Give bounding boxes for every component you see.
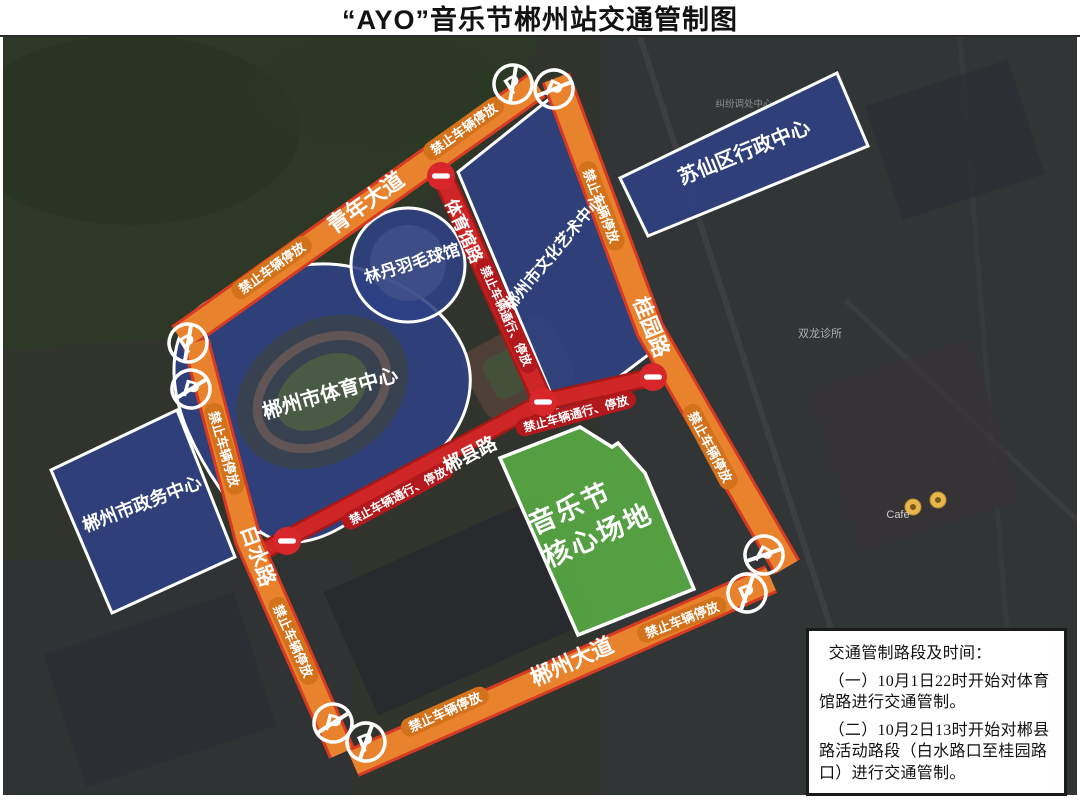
notice-item-2: （二）10月2日13时开始对郴县路活动路段（白水路口至桂园路口）进行交通管制。 [819, 720, 1054, 783]
traffic-notice-box: 交通管制路段及时间： （一）10月1日22时开始对体育馆路进行交通管制。 （二）… [806, 628, 1067, 796]
no-entry-bar [432, 173, 450, 178]
basemap-label-clinic: 双龙诊所 [798, 326, 842, 340]
no-entry-bar [534, 399, 552, 404]
no-entry-icon [427, 162, 455, 190]
traffic-control-map-page: “AYO”音乐节郴州站交通管制图 [0, 0, 1080, 801]
restaurant-pin-dot [935, 497, 941, 503]
basemap-label-dispute: 纠纷调处中心 [715, 98, 773, 110]
basemap-label-cafe: Cafe [886, 509, 909, 521]
page-title: “AYO”音乐节郴州站交通管制图 [0, 0, 1080, 37]
no-entry-icon [639, 363, 667, 391]
no-entry-bar [278, 538, 296, 543]
no-entry-icon [273, 527, 301, 555]
cafe-pin-dot [910, 504, 916, 510]
no-entry-icon [529, 388, 557, 416]
notice-heading: 交通管制路段及时间： [819, 643, 1054, 664]
no-entry-bar [644, 374, 662, 379]
notice-item-1: （一）10月1日22时开始对体育馆路进行交通管制。 [819, 671, 1054, 713]
